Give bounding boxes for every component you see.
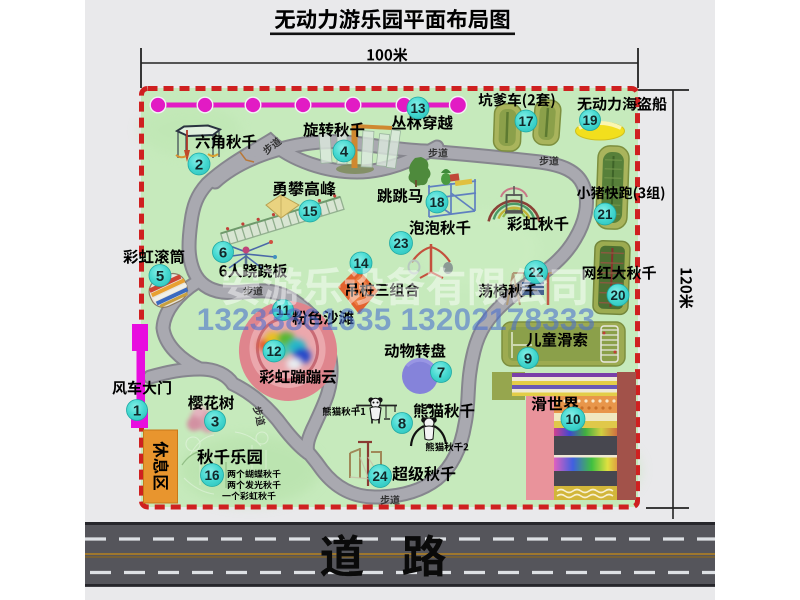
svg-text:6: 6 <box>219 244 227 261</box>
svg-text:8: 8 <box>398 415 406 432</box>
svg-text:13: 13 <box>410 101 426 116</box>
svg-text:7: 7 <box>437 364 445 381</box>
svg-text:20: 20 <box>610 288 625 303</box>
svg-text:1: 1 <box>133 402 141 419</box>
svg-text:10: 10 <box>565 412 580 427</box>
svg-text:19: 19 <box>582 113 597 128</box>
svg-text:24: 24 <box>372 469 388 484</box>
svg-text:3: 3 <box>211 413 219 430</box>
svg-text:2: 2 <box>195 156 203 173</box>
svg-text:23: 23 <box>393 236 409 251</box>
svg-text:9: 9 <box>524 350 532 367</box>
svg-text:13233861635 13202178333: 13233861635 13202178333 <box>197 301 596 337</box>
svg-text:17: 17 <box>518 114 533 129</box>
svg-text:15: 15 <box>302 204 318 219</box>
svg-text:16: 16 <box>204 468 220 483</box>
svg-text:5: 5 <box>156 268 164 285</box>
svg-text:4: 4 <box>340 143 349 160</box>
svg-text:18: 18 <box>429 195 445 210</box>
svg-text:12: 12 <box>266 344 281 359</box>
svg-text:21: 21 <box>597 207 613 222</box>
